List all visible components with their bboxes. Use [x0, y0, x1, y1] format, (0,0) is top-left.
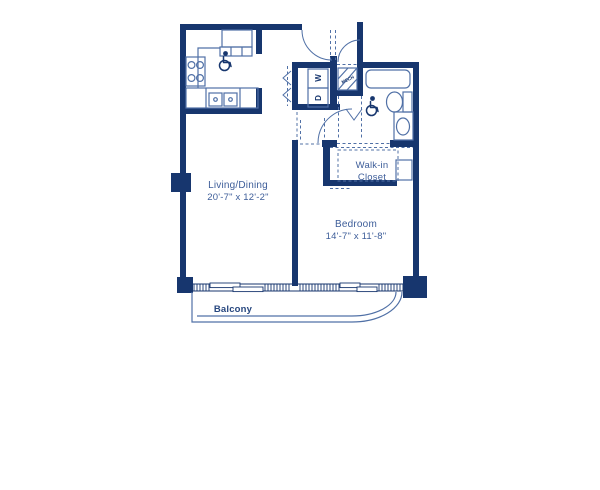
vanity-sink — [397, 118, 410, 135]
wall-kitchen-bottom — [180, 108, 262, 114]
wall-left — [180, 24, 186, 286]
wheelchair-accessible-icon — [367, 96, 379, 115]
wall-top — [180, 24, 302, 30]
wall-laundry-divider — [330, 56, 337, 110]
sink-drain — [229, 98, 233, 102]
bedroom-door-swing — [318, 109, 352, 143]
range — [186, 57, 205, 86]
bedroom-name: Bedroom — [335, 219, 377, 230]
sliding-door-bedroom-panel — [357, 287, 377, 292]
opening-chevron — [346, 109, 362, 120]
living-room-name: Living/Dining — [208, 180, 268, 191]
toilet-bowl — [387, 92, 403, 112]
burner — [188, 75, 195, 82]
wall-bedroom-left — [292, 140, 298, 286]
wall-left-pillar — [171, 173, 191, 192]
wall-kitchen-right-bottom — [256, 88, 262, 114]
wall-right — [413, 62, 419, 286]
bedroom-dims: 14'-7" x 11'-8" — [326, 231, 387, 242]
sink-basin — [209, 93, 222, 106]
sliding-door-living-panel — [233, 287, 263, 292]
floor-plan: W D MECH — [0, 0, 600, 490]
wall-closet-left — [323, 140, 330, 186]
wall-bath-top — [357, 62, 419, 68]
toilet-tank — [403, 92, 412, 112]
sink-basin — [224, 93, 237, 106]
refrigerator — [222, 30, 252, 47]
burner — [188, 62, 195, 69]
wheelchair-accessible-icon — [220, 51, 232, 70]
dryer-label: D — [314, 95, 323, 101]
bathtub — [366, 70, 410, 88]
wall-bath-bottom — [390, 140, 419, 147]
wall-laundry-left — [292, 62, 298, 110]
walls — [171, 22, 427, 298]
laundry-closet: W D — [283, 69, 328, 107]
post-bottom-right — [403, 276, 427, 298]
post-bottom-left — [177, 277, 193, 293]
bathroom-door-swing — [338, 40, 360, 62]
walk-in-closet-label-line2: Closet — [358, 172, 386, 183]
walk-in-closet-label-line1: Walk-in — [356, 160, 389, 171]
living-room-dims: 20'-7" x 12'-2" — [207, 192, 268, 203]
entry-door-swing — [302, 30, 332, 60]
washer-label: W — [314, 74, 323, 82]
wall-vestibule-right — [357, 22, 363, 92]
balcony-label: Balcony — [214, 304, 253, 315]
floor-plan-drawing: W D MECH — [0, 0, 600, 490]
wall-kitchen-right-top — [256, 24, 262, 54]
sink-drain — [214, 98, 218, 102]
window-band — [192, 283, 405, 292]
